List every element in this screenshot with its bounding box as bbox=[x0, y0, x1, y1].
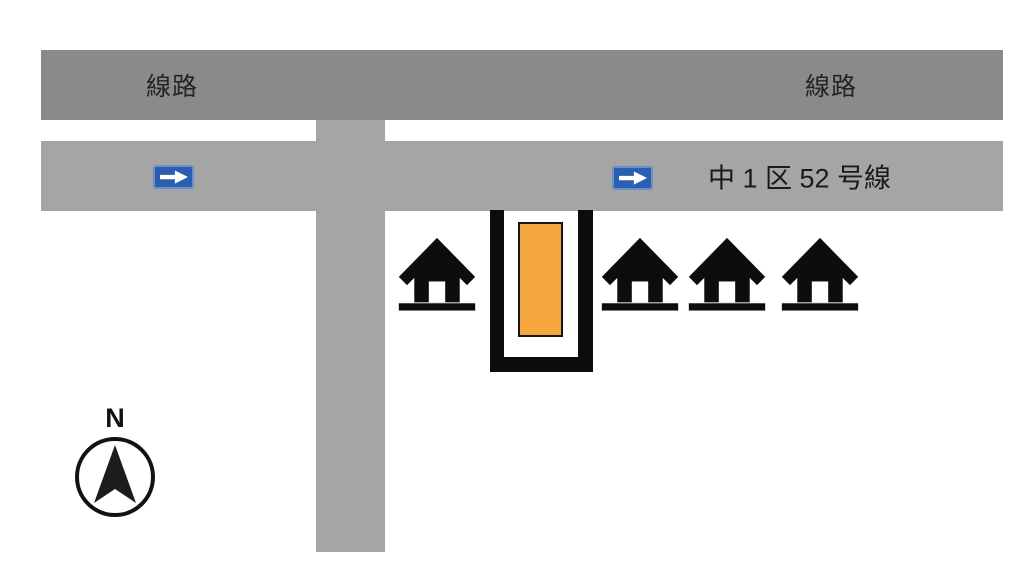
access-map: 線路 線路 中 1 区 52 号線 bbox=[0, 0, 1024, 575]
house-icon bbox=[600, 235, 680, 317]
house-icon bbox=[397, 235, 477, 317]
house-icon bbox=[600, 235, 680, 317]
right-arrow-icon bbox=[159, 170, 189, 184]
oneway-sign-left bbox=[153, 165, 194, 189]
compass-north-label: N bbox=[75, 403, 155, 434]
compass bbox=[75, 437, 155, 517]
railway-band: 線路 線路 bbox=[41, 50, 1003, 120]
railway-label-right: 線路 bbox=[805, 67, 857, 103]
house-icon bbox=[687, 235, 767, 317]
oneway-sign-right bbox=[612, 166, 653, 190]
house-icon bbox=[397, 235, 477, 317]
target-building bbox=[518, 222, 563, 337]
house-icon bbox=[780, 235, 860, 317]
road-name-label: 中 1 区 52 号線 bbox=[708, 157, 891, 196]
railway-label-left: 線路 bbox=[146, 67, 198, 103]
house-icon bbox=[687, 235, 767, 317]
road-band: 中 1 区 52 号線 bbox=[41, 141, 1003, 211]
right-arrow-icon bbox=[618, 171, 648, 185]
house-icon bbox=[780, 235, 860, 317]
north-arrow-icon bbox=[79, 441, 151, 513]
